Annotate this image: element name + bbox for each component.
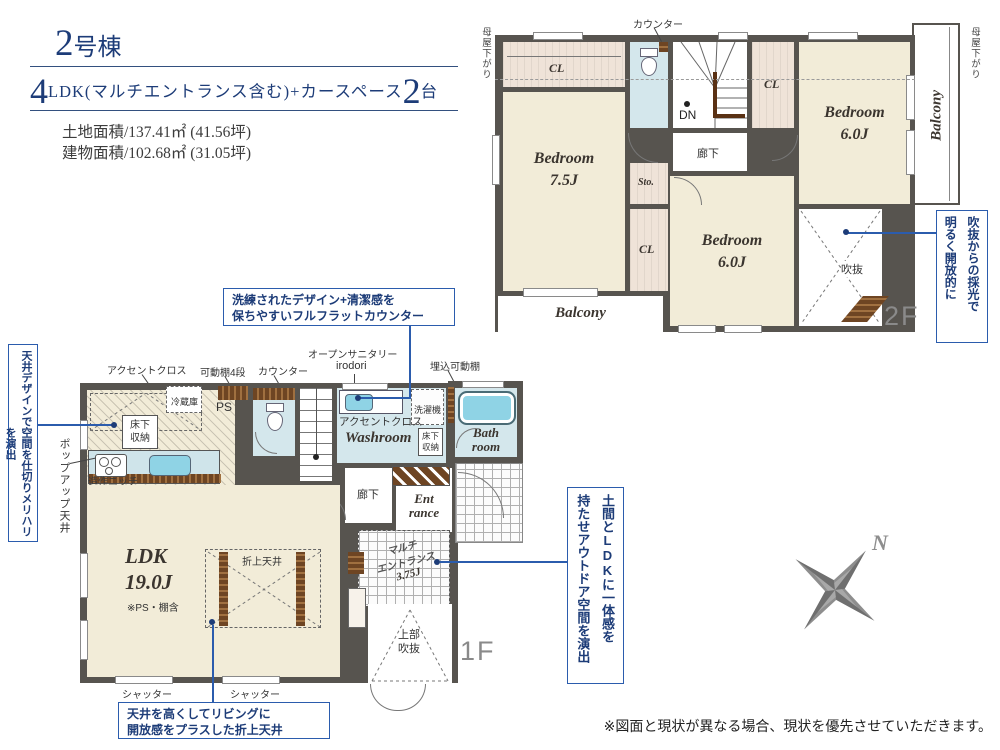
- closet-low-label: CL: [639, 243, 654, 256]
- multi-entrance: マルチ エントランス 3.75J: [358, 530, 450, 606]
- window: [523, 288, 598, 297]
- bedroom-b-size: 7.5J: [503, 172, 625, 190]
- ldk-note: ※PS・棚含: [127, 599, 179, 614]
- window: [718, 32, 748, 40]
- built-in-shelf-label: 埋込可動棚: [430, 358, 480, 373]
- staircase-2f: DN: [673, 42, 747, 128]
- window: [80, 620, 88, 660]
- burner: [99, 457, 109, 467]
- window: [80, 553, 88, 598]
- toilet-counter: [253, 388, 295, 400]
- bedroom-a: Bedroom 6.0J: [799, 42, 910, 204]
- closet-rod: [507, 56, 621, 57]
- callout-void-line2: 明るく開放的に: [943, 216, 957, 300]
- callout-void-line1: 吹抜からの採光で: [966, 216, 980, 312]
- header-rule-bottom: [30, 110, 458, 111]
- callout-coffered: 天井を高くしてリビングに 開放感をプラスした折上天井: [118, 702, 330, 739]
- staircase-1f: [300, 388, 332, 481]
- bathroom: Bath room: [455, 388, 517, 457]
- balcony-right: Balcony: [912, 23, 960, 205]
- entrance-label-2: rance: [396, 506, 452, 521]
- floor1-plan: アクセントクロス 可動棚4段 カウンター オープンサニタリー irodori 埋…: [70, 338, 600, 750]
- callout-void-light: 吹抜からの採光で 明るく開放的に: [936, 210, 988, 343]
- callout-coffered-line2: 開放感をプラスした折上天井: [127, 722, 321, 738]
- front-door-arc: [370, 684, 426, 711]
- callout-flat-counter-line2: 保ちやすいフルフラットカウンター: [232, 308, 446, 324]
- callout-dot: [355, 395, 361, 401]
- land-area: 土地面積/137.41㎡ (41.56坪): [62, 120, 251, 142]
- void-2f-label: 吹抜: [841, 261, 863, 277]
- floor2-label: 2F: [884, 301, 920, 332]
- floorplan-flyer: { "header": { "building_num": "2", "buil…: [0, 0, 1000, 750]
- window: [492, 135, 500, 185]
- bedroom-a-size: 6.0J: [799, 126, 910, 144]
- closet-top-left-label: CL: [549, 62, 564, 75]
- window: [808, 32, 858, 40]
- kitchen-sink-icon: [149, 455, 191, 476]
- counter-1f-label: カウンター: [258, 363, 308, 378]
- header-rule-top: [30, 66, 458, 67]
- window: [342, 383, 388, 390]
- counter-2f-label: カウンター: [633, 16, 683, 31]
- dn-label: DN: [679, 108, 696, 122]
- open-sanitary-label2: irodori: [336, 360, 367, 372]
- stair-up-dot: [313, 454, 319, 460]
- compass: N: [780, 522, 900, 647]
- car-count: 2: [403, 71, 421, 111]
- eave-line: [495, 79, 915, 80]
- balcony-rail-line: [949, 27, 950, 201]
- hallway-2f: 廊下: [673, 133, 747, 171]
- window: [724, 325, 762, 333]
- stair-center-line: [316, 388, 317, 458]
- floor1-label: 1F: [460, 636, 496, 667]
- bedroom-c-name: Bedroom: [670, 232, 794, 250]
- moya-left-label: 母屋下がり: [478, 27, 492, 80]
- accent-cloth-wash-label: アクセントクロス: [339, 414, 422, 429]
- callout-dot: [209, 619, 215, 625]
- balcony-bottom-label: Balcony: [498, 305, 663, 322]
- shoe-cabinet: [392, 466, 450, 486]
- callout-line: [38, 424, 114, 426]
- bedroom-c-size: 6.0J: [670, 254, 794, 272]
- closet-mid-label: CL: [764, 78, 779, 91]
- floor-storage-kitchen-label: 床下収納: [130, 419, 152, 445]
- callout-flat-counter: 洗練されたデザイン+清潔感を 保ちやすいフルフラットカウンター: [223, 288, 455, 326]
- toilet-tank-icon: [640, 48, 658, 57]
- popup-ceiling-label: ポップアップ天井: [56, 438, 72, 534]
- callout-flat-counter-line1: 洗練されたデザイン+清潔感を: [232, 292, 446, 308]
- toilet-tank-icon: [266, 403, 284, 412]
- hallway-2f-label: 廊下: [697, 145, 719, 161]
- building-number: 2: [55, 23, 74, 64]
- toilet-icon: [267, 412, 283, 431]
- moya-right-label: 母屋下がり: [967, 27, 981, 80]
- coffered-label: 折上天井: [242, 553, 282, 568]
- window: [906, 130, 915, 175]
- callout-line: [440, 561, 567, 563]
- coffered-ceiling-zone: 折上天井: [205, 549, 321, 628]
- floor2-plan: Balcony CL DN CL Bedroom 6.0J Bed: [478, 15, 986, 350]
- ldk-size: 19.0J: [125, 571, 172, 595]
- ceiling-beam: [296, 552, 305, 626]
- toilet-1f: [253, 388, 295, 456]
- void-2f: 吹抜: [799, 209, 882, 326]
- upper-void-label-2: 吹抜: [398, 640, 420, 656]
- plan-text: LDK(マルチエントランス含む)+カースペース: [48, 82, 403, 101]
- hallway-1f: 廊下: [345, 468, 392, 523]
- closet-top-left: CL: [503, 42, 625, 87]
- disclaimer: ※図面と現状が異なる場合、現状を優先させていただきます。: [604, 716, 992, 736]
- closet-mid-2f: CL: [752, 42, 794, 128]
- toilet-icon: [641, 57, 657, 76]
- window: [462, 381, 504, 388]
- washroom-label: Washroom: [345, 430, 411, 447]
- callout-ceiling-design: 天井デザインで空間を仕切りメリハリを演出: [8, 344, 38, 542]
- storage-2f: Sto.: [630, 163, 668, 204]
- balcony-bottom: Balcony: [498, 296, 663, 332]
- multi-shelf: [348, 552, 364, 574]
- callout-coffered-line1: 天井を高くしてリビングに: [127, 706, 321, 722]
- floor-storage-wash-label: 床下収納: [422, 431, 440, 453]
- bedroom-b-name: Bedroom: [503, 150, 625, 168]
- bedroom-b: Bedroom 7.5J: [503, 92, 625, 291]
- toilet-2f: [630, 42, 668, 128]
- building-area: 建物面積/102.68㎡ (31.05坪): [62, 141, 251, 163]
- burner: [111, 457, 121, 467]
- built-in-shelf: [448, 387, 454, 423]
- entrance-porch: [455, 463, 523, 543]
- door-arc: [458, 472, 504, 518]
- closet-low-2f: CL: [630, 209, 668, 291]
- compass-rose-icon: N: [780, 522, 900, 647]
- callout-dot: [434, 559, 440, 565]
- balcony-right-label: Balcony: [929, 55, 946, 175]
- header: 2号棟: [55, 22, 122, 65]
- car-suffix: 台: [421, 82, 438, 101]
- open-sanitary-label1: オープンサニタリー: [308, 346, 397, 361]
- upper-void: 上部 吹抜: [368, 604, 452, 683]
- callout-doma-line2: 持たせアウトドア空間を演出: [575, 494, 590, 663]
- plan-count: 4: [30, 71, 48, 111]
- shutter-window-2: [222, 676, 280, 684]
- stair-dn-dot: [684, 101, 690, 107]
- compass-north-label: N: [871, 530, 889, 555]
- callout-line: [360, 397, 411, 399]
- callout-line: [212, 625, 214, 702]
- window: [906, 75, 915, 120]
- vanity-counter: [339, 390, 403, 414]
- floor-storage-wash: 床下収納: [418, 428, 443, 456]
- counter-2f-strip: [659, 42, 668, 52]
- ceiling-beam: [219, 552, 228, 626]
- shutter-label-2: シャッター: [230, 686, 280, 701]
- shutter-window-1: [115, 676, 173, 684]
- building-suffix: 号棟: [74, 35, 122, 61]
- bathtub-icon: [458, 391, 516, 425]
- washroom: 洗濯機 アクセントクロス Washroom 床下収納: [337, 388, 446, 463]
- door-arc: [255, 432, 277, 454]
- plan-summary: 4LDK(マルチエントランス含む)+カースペース2台: [30, 70, 460, 112]
- floor-storage-kitchen: 床下収納: [122, 415, 158, 449]
- ldk-name: LDK: [125, 545, 167, 569]
- window: [678, 325, 716, 333]
- movable-shelf-top: [218, 386, 248, 400]
- fridge-label: 冷蔵庫: [171, 395, 198, 408]
- callout-dot: [111, 422, 117, 428]
- callout-dot: [843, 229, 849, 235]
- fridge: 冷蔵庫: [166, 386, 202, 413]
- multi-closet: [348, 588, 366, 628]
- callout-line: [848, 232, 936, 234]
- ps-label: PS: [216, 400, 232, 414]
- bedroom-a-name: Bedroom: [799, 104, 910, 122]
- callout-line: [409, 326, 411, 398]
- accent-cloth-top-label: アクセントクロス: [107, 362, 187, 377]
- callout-doma: 土間とLDKに一体感を 持たせアウトドア空間を演出: [567, 487, 624, 684]
- storage-2f-label: Sto.: [638, 177, 654, 188]
- callout-doma-line1: 土間とLDKに一体感を: [600, 494, 615, 643]
- shutter-label-1: シャッター: [122, 686, 172, 701]
- hallway-1f-label: 廊下: [357, 486, 379, 502]
- window: [533, 32, 583, 40]
- shelf4-top-label: 可動棚4段: [200, 364, 246, 379]
